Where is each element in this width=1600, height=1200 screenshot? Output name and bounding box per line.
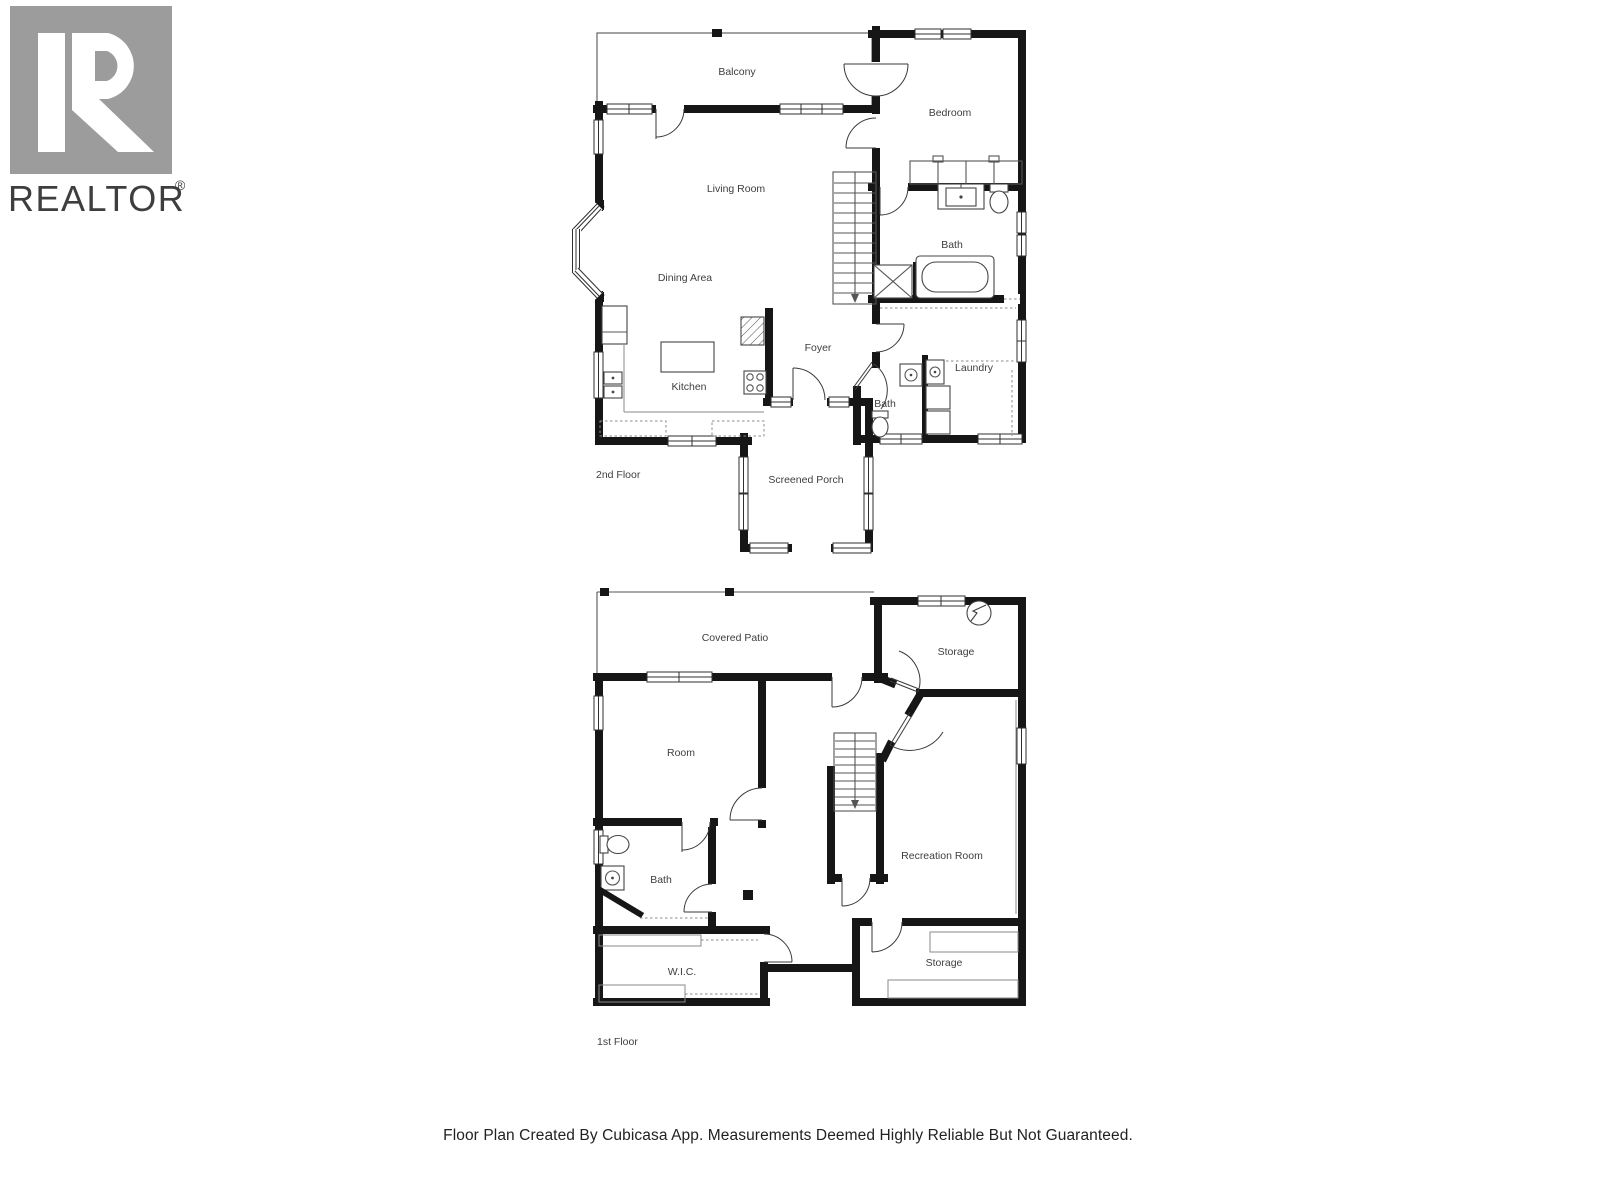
bathtub-icon	[916, 256, 994, 298]
small-bath-toilet-icon	[872, 411, 888, 437]
room-label-living-room: Living Room	[707, 183, 766, 195]
doors-first-floor	[682, 651, 943, 962]
washer-icon	[926, 360, 944, 384]
bath-diagonal-wall	[600, 890, 640, 914]
room-label-balcony: Balcony	[718, 66, 756, 78]
registered-mark: ®	[175, 177, 186, 193]
room-label-bath: Bath	[941, 239, 963, 251]
room-label-storage-bottom: Storage	[926, 957, 963, 969]
electrical-panel-icon	[967, 601, 991, 625]
room-label-kitchen: Kitchen	[671, 381, 706, 393]
footer-disclaimer: Floor Plan Created By Cubicasa App. Meas…	[0, 1127, 1576, 1145]
dryer-icons	[926, 386, 950, 434]
first-floor-plan: Covered Patio Storage Room Recreation Ro…	[594, 588, 1026, 1048]
fireplace-icon	[741, 317, 764, 345]
room-label-wic: W.I.C.	[668, 966, 697, 978]
room-label-storage-top: Storage	[938, 646, 975, 658]
fridge-icon	[602, 306, 627, 344]
stairs-icon-first	[834, 733, 876, 811]
vanity-sink-icon	[938, 184, 984, 209]
second-floor-walls	[576, 30, 1022, 441]
kitchen-sink-icon	[604, 372, 622, 398]
room-label-bedroom: Bedroom	[929, 107, 972, 119]
kitchen-island	[661, 342, 714, 372]
room-label-covered-patio: Covered Patio	[702, 632, 769, 644]
room-label-screened-porch: Screened Porch	[768, 474, 843, 486]
second-floor-plan: Balcony Bedroom Living Room Dining Area …	[573, 29, 1027, 553]
recreation-diagonal-door	[890, 712, 943, 750]
shower-icon	[874, 265, 912, 298]
room-label-room: Room	[667, 747, 695, 759]
room-label-bath-first: Bath	[650, 874, 672, 886]
room-label-foyer: Foyer	[805, 342, 832, 354]
bay-window	[573, 204, 603, 298]
floor-title-2nd: 2nd Floor	[596, 469, 641, 481]
toilet-icon	[990, 184, 1008, 213]
bedroom-closet	[910, 156, 1022, 184]
front-door	[793, 368, 825, 400]
small-bath-sink-icon	[900, 364, 922, 386]
realtor-logo: REALTOR ®	[8, 4, 203, 222]
kitchen-fixtures	[600, 306, 766, 436]
room-label-bath-small: Bath	[874, 398, 896, 410]
column	[743, 890, 753, 900]
room-label-laundry: Laundry	[955, 362, 994, 374]
floor-title-1st: 1st Floor	[597, 1036, 638, 1048]
first-floor-walls	[597, 601, 1022, 1002]
toilet-icon-first	[600, 836, 629, 854]
floor-plan-canvas: Balcony Bedroom Living Room Dining Area …	[555, 20, 1040, 1060]
stairs-icon	[833, 172, 876, 304]
stove-icon	[744, 371, 766, 394]
realtor-logo-text: REALTOR	[8, 178, 185, 219]
sink-icon-first	[601, 866, 624, 890]
room-label-dining-area: Dining Area	[658, 272, 712, 284]
room-label-recreation-room: Recreation Room	[901, 850, 983, 862]
